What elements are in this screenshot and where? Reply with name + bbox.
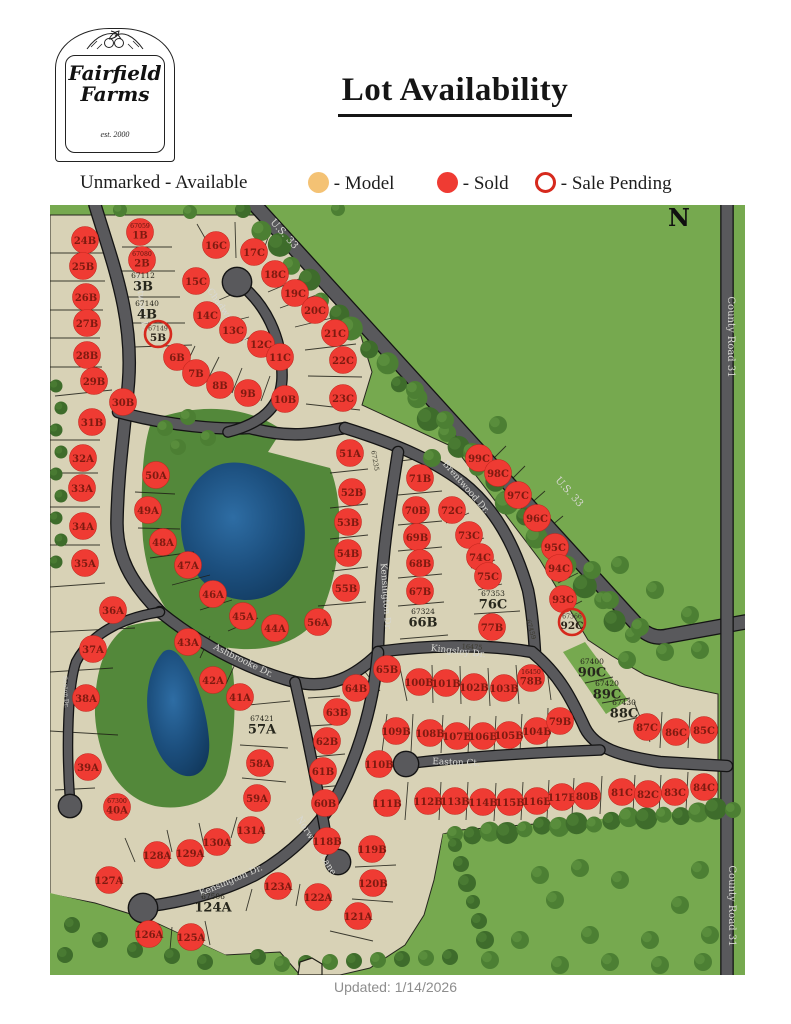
svg-text:21C: 21C bbox=[324, 329, 346, 340]
svg-text:124A: 124A bbox=[194, 901, 232, 916]
lot-65B: 65B bbox=[374, 656, 401, 683]
svg-text:30B: 30B bbox=[112, 398, 134, 409]
lot-78B: 1645078B bbox=[518, 665, 545, 692]
svg-text:110B: 110B bbox=[364, 760, 393, 771]
tree-icon bbox=[611, 871, 629, 889]
lot-47A: 47A bbox=[175, 552, 202, 579]
lot-96C: 96C bbox=[524, 505, 551, 532]
lot-26B: 26B bbox=[73, 284, 100, 311]
svg-text:109B: 109B bbox=[381, 727, 410, 738]
lot-20C: 20C bbox=[302, 297, 329, 324]
svg-text:16C: 16C bbox=[205, 241, 227, 252]
north-compass: N bbox=[668, 205, 690, 232]
lot-32A: 32A bbox=[70, 445, 97, 472]
lot-45A: 45A bbox=[230, 603, 257, 630]
svg-text:77B: 77B bbox=[481, 623, 503, 634]
svg-text:60B: 60B bbox=[314, 799, 336, 810]
tree-icon bbox=[551, 956, 569, 974]
tree-icon bbox=[656, 643, 674, 661]
svg-text:83C: 83C bbox=[664, 788, 686, 799]
lot-72C: 72C bbox=[439, 497, 466, 524]
tree-icon bbox=[50, 380, 63, 393]
lot-25B: 25B bbox=[70, 253, 97, 280]
svg-text:111B: 111B bbox=[372, 799, 401, 810]
tree-icon bbox=[517, 821, 533, 837]
lot-49A: 49A bbox=[135, 497, 162, 524]
svg-text:31B: 31B bbox=[81, 418, 103, 429]
svg-text:17C: 17C bbox=[243, 248, 265, 259]
svg-text:93C: 93C bbox=[552, 595, 574, 606]
lot-2B: 670802B bbox=[129, 247, 156, 274]
svg-text:120B: 120B bbox=[358, 879, 387, 890]
lot-59A: 59A bbox=[244, 785, 271, 812]
lot-94C: 94C bbox=[546, 555, 573, 582]
svg-text:22C: 22C bbox=[332, 356, 354, 367]
tree-icon bbox=[691, 861, 709, 879]
lot-1B: 670591B bbox=[127, 219, 154, 246]
svg-text:23C: 23C bbox=[332, 394, 354, 405]
svg-text:98C: 98C bbox=[487, 469, 509, 480]
svg-text:40A: 40A bbox=[106, 806, 128, 817]
svg-text:97C: 97C bbox=[507, 491, 529, 502]
lot-29B: 29B bbox=[81, 368, 108, 395]
tree-icon bbox=[50, 468, 63, 481]
svg-text:10B: 10B bbox=[274, 395, 296, 406]
tree-icon bbox=[394, 951, 410, 967]
lot-57A: 6742157A bbox=[248, 714, 277, 738]
logo-name-line2: Farms bbox=[56, 84, 174, 105]
svg-text:63B: 63B bbox=[326, 708, 348, 719]
svg-text:44A: 44A bbox=[264, 624, 286, 635]
svg-text:11C: 11C bbox=[269, 353, 291, 364]
street-label: County Road 31 bbox=[725, 296, 736, 377]
lot-62B: 62B bbox=[314, 728, 341, 755]
svg-text:101B: 101B bbox=[431, 679, 460, 690]
svg-text:1B: 1B bbox=[132, 231, 147, 242]
svg-text:41A: 41A bbox=[229, 693, 251, 704]
svg-text:36A: 36A bbox=[102, 606, 124, 617]
tree-icon bbox=[50, 424, 63, 437]
road-number-label: 16475 bbox=[462, 642, 483, 651]
svg-text:55B: 55B bbox=[335, 584, 357, 595]
svg-text:121A: 121A bbox=[344, 912, 373, 923]
tree-icon bbox=[671, 896, 689, 914]
svg-text:58A: 58A bbox=[249, 759, 271, 770]
tree-icon bbox=[50, 512, 63, 525]
tree-icon bbox=[631, 618, 649, 636]
lot-92C: 6736692C bbox=[559, 609, 585, 635]
lot-46A: 46A bbox=[200, 581, 227, 608]
lot-22C: 22C bbox=[330, 347, 357, 374]
tree-icon bbox=[448, 838, 462, 852]
tree-icon bbox=[50, 556, 63, 569]
svg-text:34A: 34A bbox=[72, 522, 94, 533]
svg-text:52B: 52B bbox=[341, 488, 363, 499]
lot-53B: 53B bbox=[335, 509, 362, 536]
lot-11C: 11C bbox=[267, 344, 294, 371]
tree-icon bbox=[180, 409, 196, 425]
lot-43A: 43A bbox=[175, 629, 202, 656]
svg-text:67080: 67080 bbox=[132, 251, 152, 258]
svg-text:56A: 56A bbox=[307, 618, 329, 629]
svg-text:9B: 9B bbox=[240, 389, 255, 400]
svg-text:37A: 37A bbox=[82, 645, 104, 656]
lot-79B: 79B bbox=[547, 708, 574, 735]
tree-icon bbox=[656, 807, 672, 823]
svg-text:28B: 28B bbox=[76, 351, 98, 362]
svg-text:61B: 61B bbox=[312, 767, 334, 778]
tree-icon bbox=[322, 954, 338, 970]
lot-44A: 44A bbox=[262, 615, 289, 642]
svg-text:105B: 105B bbox=[494, 731, 523, 742]
lot-48A: 48A bbox=[150, 529, 177, 556]
svg-text:5B: 5B bbox=[150, 332, 166, 344]
svg-text:18C: 18C bbox=[264, 270, 286, 281]
lot-70B: 70B bbox=[403, 497, 430, 524]
tree-icon bbox=[641, 931, 659, 949]
site-map: Brentwood Dr.Chadwicke Ct.U.S. 33U.S. 33… bbox=[50, 205, 745, 975]
lot-64B: 64B bbox=[343, 675, 370, 702]
svg-text:43A: 43A bbox=[177, 638, 199, 649]
lot-7B: 7B bbox=[183, 360, 210, 387]
lot-67B: 67B bbox=[407, 578, 434, 605]
tree-icon bbox=[571, 859, 589, 877]
lot-54B: 54B bbox=[335, 540, 362, 567]
svg-text:122A: 122A bbox=[304, 893, 333, 904]
tree-icon bbox=[197, 954, 213, 970]
svg-text:8B: 8B bbox=[212, 381, 227, 392]
svg-text:87C: 87C bbox=[636, 723, 658, 734]
updated-date: Updated: 1/14/2026 bbox=[0, 979, 791, 995]
svg-text:131A: 131A bbox=[237, 826, 266, 837]
lot-69B: 69B bbox=[404, 524, 431, 551]
lot-3B: 671123B bbox=[131, 271, 155, 295]
svg-text:81C: 81C bbox=[611, 788, 633, 799]
svg-text:107B: 107B bbox=[442, 732, 471, 743]
tree-icon bbox=[200, 430, 216, 446]
lot-14C: 14C bbox=[194, 302, 221, 329]
tree-icon bbox=[466, 895, 480, 909]
svg-text:24B: 24B bbox=[74, 236, 96, 247]
tree-icon bbox=[481, 951, 499, 969]
svg-text:27B: 27B bbox=[76, 319, 98, 330]
lot-40A: 6730040A bbox=[104, 794, 131, 821]
tree-icon bbox=[423, 449, 441, 467]
svg-text:39A: 39A bbox=[77, 763, 99, 774]
svg-text:26B: 26B bbox=[75, 293, 97, 304]
model-dot-icon bbox=[308, 172, 329, 193]
svg-text:20C: 20C bbox=[304, 306, 326, 317]
lot-23C: 23C bbox=[330, 385, 357, 412]
tree-icon bbox=[55, 534, 68, 547]
svg-text:72C: 72C bbox=[441, 506, 463, 517]
tree-icon bbox=[418, 950, 434, 966]
tree-icon bbox=[377, 352, 399, 374]
lot-75C: 75C bbox=[475, 563, 502, 590]
lot-84C: 84C bbox=[691, 774, 718, 801]
svg-text:80B: 80B bbox=[576, 792, 598, 803]
lot-83C: 83C bbox=[662, 779, 689, 806]
svg-text:99C: 99C bbox=[468, 454, 490, 465]
svg-text:79B: 79B bbox=[549, 717, 571, 728]
svg-text:51A: 51A bbox=[339, 449, 361, 460]
lot-98C: 98C bbox=[485, 460, 512, 487]
street-label: Easton Ct. bbox=[432, 757, 480, 769]
tree-icon bbox=[471, 913, 487, 929]
lot-88C: 6743088C bbox=[610, 698, 638, 722]
page-title: Lot Availability bbox=[300, 72, 610, 117]
svg-text:130A: 130A bbox=[203, 838, 232, 849]
lot-17C: 17C bbox=[241, 239, 268, 266]
svg-text:78B: 78B bbox=[520, 677, 542, 688]
svg-text:46A: 46A bbox=[202, 590, 224, 601]
svg-text:127A: 127A bbox=[95, 876, 124, 887]
tree-icon bbox=[566, 812, 588, 834]
tree-icon bbox=[646, 581, 664, 599]
lot-80B: 80B bbox=[574, 783, 601, 810]
lot-86C: 86C bbox=[663, 719, 690, 746]
svg-text:85C: 85C bbox=[693, 726, 715, 737]
lot-56A: 56A bbox=[305, 609, 332, 636]
svg-text:94C: 94C bbox=[548, 564, 570, 575]
fairfield-farms-logo: Fairfield Farms est. 2000 bbox=[55, 28, 175, 162]
svg-text:49A: 49A bbox=[137, 506, 159, 517]
lot-9B: 9B bbox=[235, 380, 262, 407]
svg-text:113B: 113B bbox=[440, 797, 469, 808]
tree-icon bbox=[618, 651, 636, 669]
lot-4B: 671404B bbox=[135, 299, 159, 323]
tree-icon bbox=[463, 826, 481, 844]
lot-61B: 61B bbox=[310, 758, 337, 785]
tree-icon bbox=[583, 561, 601, 579]
wheat-sprig-icon bbox=[79, 27, 151, 53]
tree-icon bbox=[250, 949, 266, 965]
tree-icon bbox=[157, 420, 173, 436]
svg-text:64B: 64B bbox=[345, 684, 367, 695]
tree-icon bbox=[170, 439, 186, 455]
svg-text:106B: 106B bbox=[468, 732, 497, 743]
tree-icon bbox=[586, 817, 602, 833]
svg-text:82C: 82C bbox=[637, 790, 659, 801]
tree-icon bbox=[92, 932, 108, 948]
tree-icon bbox=[489, 416, 507, 434]
tree-icon bbox=[64, 917, 80, 933]
tree-icon bbox=[55, 490, 68, 503]
logo-established: est. 2000 bbox=[56, 130, 174, 139]
svg-text:73C: 73C bbox=[458, 531, 480, 542]
tree-icon bbox=[55, 402, 68, 415]
tree-icon bbox=[476, 931, 494, 949]
tree-icon bbox=[453, 856, 469, 872]
lot-60B: 60B bbox=[312, 790, 339, 817]
svg-text:128A: 128A bbox=[143, 851, 172, 862]
lot-97C: 97C bbox=[505, 482, 532, 509]
lot-77B: 77B bbox=[479, 614, 506, 641]
lot-13C: 13C bbox=[220, 317, 247, 344]
tree-icon bbox=[601, 953, 619, 971]
svg-text:102B: 102B bbox=[459, 683, 488, 694]
tree-icon bbox=[604, 610, 626, 632]
lot-27B: 27B bbox=[74, 310, 101, 337]
svg-text:67B: 67B bbox=[409, 587, 431, 598]
lot-8B: 8B bbox=[207, 372, 234, 399]
svg-text:6B: 6B bbox=[169, 353, 184, 364]
svg-text:75C: 75C bbox=[477, 572, 499, 583]
lot-58A: 58A bbox=[247, 750, 274, 777]
lot-51A: 51A bbox=[337, 440, 364, 467]
svg-text:66B: 66B bbox=[408, 616, 437, 631]
tree-icon bbox=[436, 411, 454, 429]
lot-82C: 82C bbox=[635, 781, 662, 808]
svg-text:86C: 86C bbox=[665, 728, 687, 739]
svg-text:33A: 33A bbox=[71, 484, 93, 495]
svg-text:15C: 15C bbox=[185, 277, 207, 288]
lot-33A: 33A bbox=[69, 475, 96, 502]
tree-icon bbox=[705, 798, 727, 820]
svg-text:50A: 50A bbox=[145, 471, 167, 482]
svg-text:88C: 88C bbox=[610, 707, 638, 722]
svg-text:35A: 35A bbox=[74, 559, 96, 570]
street-label: County Road 31 bbox=[726, 865, 737, 946]
tree-icon bbox=[601, 591, 619, 609]
lot-63B: 63B bbox=[324, 699, 351, 726]
tree-icon bbox=[602, 812, 620, 830]
svg-text:2B: 2B bbox=[134, 259, 149, 270]
svg-text:65B: 65B bbox=[376, 665, 398, 676]
tree-icon bbox=[511, 931, 529, 949]
svg-text:68B: 68B bbox=[409, 559, 431, 570]
svg-text:76C: 76C bbox=[479, 598, 507, 613]
svg-text:54B: 54B bbox=[337, 549, 359, 560]
svg-text:14C: 14C bbox=[196, 311, 218, 322]
tree-icon bbox=[533, 817, 551, 835]
lot-10B: 10B bbox=[272, 386, 299, 413]
legend-pending-label: - Sale Pending bbox=[561, 173, 672, 194]
tree-icon bbox=[183, 205, 197, 219]
tree-icon bbox=[57, 947, 73, 963]
lot-36A: 36A bbox=[100, 597, 127, 624]
svg-text:4B: 4B bbox=[137, 308, 157, 323]
lot-85C: 85C bbox=[691, 717, 718, 744]
svg-text:32A: 32A bbox=[72, 454, 94, 465]
svg-text:114B: 114B bbox=[468, 798, 497, 809]
legend: Unmarked - Available - Model - Sold - Sa… bbox=[0, 170, 791, 204]
tree-icon bbox=[531, 866, 549, 884]
lot-15C: 15C bbox=[183, 268, 210, 295]
tree-icon bbox=[635, 807, 657, 829]
svg-text:119B: 119B bbox=[357, 845, 386, 856]
lot-90C: 6740090C bbox=[578, 657, 606, 681]
tree-icon bbox=[55, 446, 68, 459]
lot-30B: 30B bbox=[110, 389, 137, 416]
svg-text:126A: 126A bbox=[135, 930, 164, 941]
svg-text:13C: 13C bbox=[222, 326, 244, 337]
svg-text:59A: 59A bbox=[246, 794, 268, 805]
svg-text:7B: 7B bbox=[188, 369, 203, 380]
tree-icon bbox=[672, 807, 690, 825]
svg-text:100B: 100B bbox=[404, 678, 433, 689]
tree-icon bbox=[370, 952, 386, 968]
lot-71B: 71B bbox=[407, 465, 434, 492]
svg-text:117B: 117B bbox=[547, 793, 576, 804]
tree-icon bbox=[274, 956, 290, 972]
tree-icon bbox=[651, 956, 669, 974]
tree-icon bbox=[691, 641, 709, 659]
lot-68B: 68B bbox=[407, 550, 434, 577]
lot-16C: 16C bbox=[203, 232, 230, 259]
lot-87C: 87C bbox=[634, 714, 661, 741]
tree-icon bbox=[406, 381, 424, 399]
svg-text:19C: 19C bbox=[284, 289, 306, 300]
lot-24B: 24B bbox=[72, 227, 99, 254]
lot-66B: 6732466B bbox=[408, 607, 437, 631]
legend-sold-label: - Sold bbox=[463, 173, 509, 194]
lot-76C: 6735376C bbox=[479, 589, 507, 613]
sold-dot-icon bbox=[437, 172, 458, 193]
lot-37A: 37A bbox=[80, 636, 107, 663]
tree-icon bbox=[681, 606, 699, 624]
lot-31B: 31B bbox=[79, 409, 106, 436]
lot-50A: 50A bbox=[143, 462, 170, 489]
svg-text:95C: 95C bbox=[544, 543, 566, 554]
svg-text:123A: 123A bbox=[264, 882, 293, 893]
lot-34A: 34A bbox=[70, 513, 97, 540]
tree-icon bbox=[611, 556, 629, 574]
svg-text:25B: 25B bbox=[72, 262, 94, 273]
svg-text:29B: 29B bbox=[83, 377, 105, 388]
tree-icon bbox=[164, 948, 180, 964]
svg-text:112B: 112B bbox=[413, 797, 442, 808]
svg-text:118B: 118B bbox=[312, 837, 341, 848]
legend-model-label: - Model bbox=[334, 173, 395, 194]
svg-text:67300: 67300 bbox=[107, 798, 127, 805]
svg-text:16450: 16450 bbox=[521, 669, 541, 676]
svg-text:103B: 103B bbox=[489, 684, 518, 695]
svg-text:48A: 48A bbox=[152, 538, 174, 549]
lot-42A: 42A bbox=[200, 667, 227, 694]
tree-icon bbox=[725, 802, 741, 818]
svg-text:104B: 104B bbox=[522, 727, 551, 738]
lot-52B: 52B bbox=[339, 479, 366, 506]
svg-text:38A: 38A bbox=[75, 694, 97, 705]
svg-text:69B: 69B bbox=[406, 533, 428, 544]
lot-35A: 35A bbox=[72, 550, 99, 577]
logo-name-line1: Fairfield bbox=[56, 63, 174, 84]
svg-text:115B: 115B bbox=[495, 798, 524, 809]
svg-text:71B: 71B bbox=[409, 474, 431, 485]
svg-text:67059: 67059 bbox=[130, 223, 150, 230]
tree-icon bbox=[701, 926, 719, 944]
tree-icon bbox=[546, 891, 564, 909]
tree-icon bbox=[346, 953, 362, 969]
svg-text:84C: 84C bbox=[693, 783, 715, 794]
lot-28B: 28B bbox=[74, 342, 101, 369]
tree-icon bbox=[694, 953, 712, 971]
svg-text:3B: 3B bbox=[133, 280, 153, 295]
svg-text:96C: 96C bbox=[526, 514, 548, 525]
svg-text:47A: 47A bbox=[177, 561, 199, 572]
svg-text:57A: 57A bbox=[248, 723, 277, 738]
svg-text:125A: 125A bbox=[177, 933, 206, 944]
tree-icon bbox=[496, 822, 518, 844]
svg-text:108B: 108B bbox=[415, 729, 444, 740]
lot-18C: 18C bbox=[262, 261, 289, 288]
lot-39A: 39A bbox=[75, 754, 102, 781]
svg-text:42A: 42A bbox=[202, 676, 224, 687]
tree-icon bbox=[581, 926, 599, 944]
lot-55B: 55B bbox=[333, 575, 360, 602]
tree-icon bbox=[442, 949, 458, 965]
